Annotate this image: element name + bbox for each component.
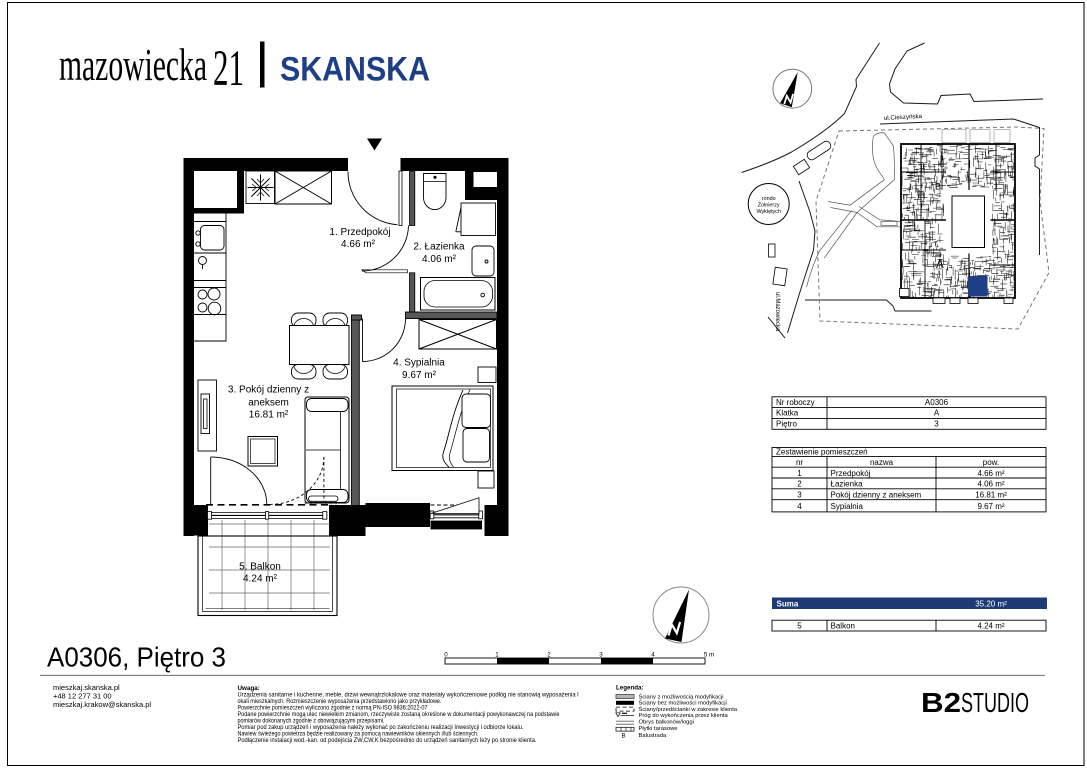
- svg-text:A: A: [934, 409, 940, 418]
- svg-text:1. Przedpokój: 1. Przedpokój: [329, 227, 390, 238]
- svg-text:Piętro: Piętro: [776, 419, 797, 428]
- svg-text:STUDIO: STUDIO: [961, 687, 1029, 718]
- svg-text:4: 4: [797, 502, 802, 511]
- svg-text:B: B: [622, 734, 626, 740]
- svg-text:Podłączenie instalacji wod.-ka: Podłączenie instalacji wod.-kan. od pode…: [238, 737, 537, 744]
- svg-text:1: 1: [495, 652, 499, 659]
- svg-text:3. Pokój dzienny z: 3. Pokój dzienny z: [228, 385, 309, 396]
- svg-text:4.24 m²: 4.24 m²: [243, 574, 278, 585]
- svg-text:Nr roboczy: Nr roboczy: [776, 398, 815, 407]
- svg-text:9.67 m²: 9.67 m²: [977, 502, 1004, 511]
- svg-text:B2: B2: [921, 687, 961, 718]
- svg-text:nazwa: nazwa: [870, 458, 894, 467]
- svg-text:Balustrada: Balustrada: [639, 733, 667, 739]
- svg-text:Płytki tarasowe: Płytki tarasowe: [639, 726, 678, 732]
- svg-text:Balkon: Balkon: [831, 622, 855, 631]
- svg-text:3: 3: [797, 491, 802, 500]
- svg-text:pow.: pow.: [983, 458, 999, 467]
- svg-text:3: 3: [934, 419, 939, 428]
- svg-text:Ściany z możliwością modyfikac: Ściany z możliwością modyfikacji: [639, 692, 724, 700]
- svg-text:2: 2: [797, 480, 802, 489]
- svg-text:Suma: Suma: [777, 599, 799, 608]
- svg-text:Obrys balkonów/loggi: Obrys balkonów/loggi: [639, 720, 694, 726]
- svg-text:9.67 m²: 9.67 m²: [402, 370, 437, 381]
- svg-text:35.20 m²: 35.20 m²: [975, 599, 1007, 608]
- svg-text:4.66 m²: 4.66 m²: [977, 469, 1004, 478]
- svg-text:4: 4: [651, 652, 655, 659]
- svg-text:Legenda:: Legenda:: [616, 685, 644, 692]
- svg-text:4.24 m²: 4.24 m²: [977, 622, 1004, 631]
- svg-text:16.81 m²: 16.81 m²: [975, 491, 1007, 500]
- svg-text:Sypialnia: Sypialnia: [831, 502, 864, 511]
- svg-text:5: 5: [797, 622, 802, 631]
- svg-text:21: 21: [213, 41, 244, 97]
- svg-text:16.81 m²: 16.81 m²: [249, 410, 289, 421]
- svg-text:Ściany/przedścianki w zakresie: Ściany/przedścianki w zakresie klienta: [639, 705, 738, 713]
- svg-text:A0306, Piętro 3: A0306, Piętro 3: [47, 642, 226, 673]
- svg-text:Próg do wykończenia przez klie: Próg do wykończenia przez klienta: [639, 713, 729, 719]
- svg-text:mieszkaj.krakow@skanska.pl: mieszkaj.krakow@skanska.pl: [53, 700, 151, 709]
- svg-text:A: A: [936, 259, 944, 271]
- svg-text:0: 0: [444, 652, 448, 659]
- svg-text:Zestawienie pomieszczeń: Zestawienie pomieszczeń: [776, 448, 868, 457]
- svg-text:Przedpokój: Przedpokój: [831, 469, 871, 478]
- svg-text:mazowiecka: mazowiecka: [59, 39, 207, 90]
- svg-text:SKANSKA: SKANSKA: [280, 51, 430, 89]
- svg-text:aneksem: aneksem: [248, 398, 289, 409]
- svg-text:rondo: rondo: [762, 196, 776, 202]
- svg-text:5 m: 5 m: [704, 652, 714, 659]
- svg-text:Łazienka: Łazienka: [831, 480, 864, 489]
- svg-text:A0306: A0306: [925, 398, 949, 407]
- svg-text:4. Sypialnia: 4. Sypialnia: [393, 358, 445, 369]
- svg-text:B: B: [935, 182, 941, 192]
- svg-text:Klatka: Klatka: [776, 409, 799, 418]
- svg-text:Ściany bez możliwości modyfika: Ściany bez możliwości modyfikacji: [639, 699, 727, 707]
- svg-text:nr: nr: [796, 458, 803, 467]
- svg-text:4.66 m²: 4.66 m²: [341, 239, 376, 250]
- svg-text:3: 3: [599, 652, 603, 659]
- svg-text:4.06 m²: 4.06 m²: [977, 480, 1004, 489]
- svg-text:Żołnierzy: Żołnierzy: [758, 202, 780, 209]
- svg-text:5. Balkon: 5. Balkon: [239, 562, 281, 573]
- svg-text:Wyklętych: Wyklętych: [756, 209, 781, 215]
- svg-text:1: 1: [797, 469, 802, 478]
- svg-text:4.06 m²: 4.06 m²: [422, 254, 457, 265]
- svg-text:2: 2: [547, 652, 551, 659]
- svg-text:Pokój dzienny z aneksem: Pokój dzienny z aneksem: [831, 491, 922, 500]
- svg-text:2. Łazienka: 2. Łazienka: [413, 242, 465, 253]
